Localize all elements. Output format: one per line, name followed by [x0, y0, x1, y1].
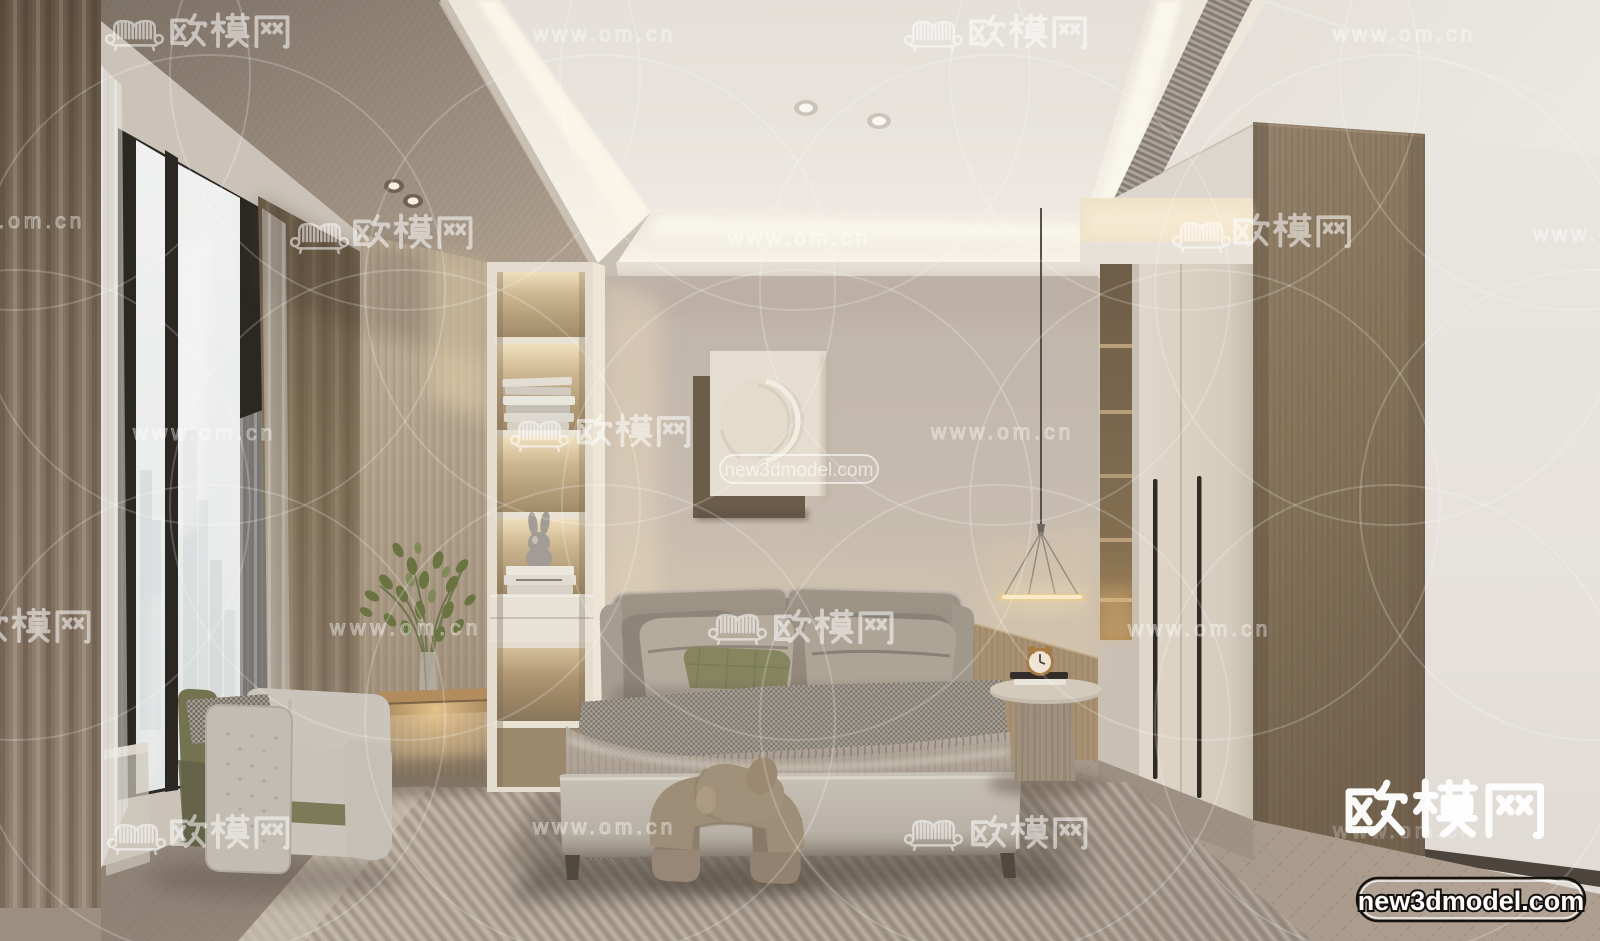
svg-text:www.om.cn: www.om.cn: [1127, 618, 1271, 641]
svg-text:www.om.cn: www.om.cn: [532, 23, 676, 46]
svg-text:www.om.cn: www.om.cn: [727, 227, 871, 250]
svg-text:www.om.cn: www.om.cn: [329, 617, 482, 640]
svg-text:www.om.cn: www.om.cn: [930, 421, 1074, 444]
svg-text:www.om.cn: www.om.cn: [1332, 23, 1476, 46]
svg-text:new3dmodel.com: new3dmodel.com: [1358, 886, 1585, 916]
svg-text:new3dmodel.com: new3dmodel.com: [725, 460, 874, 481]
svg-text:www.om.cn: www.om.cn: [0, 210, 85, 233]
svg-text:www.om.cn: www.om.cn: [132, 422, 276, 445]
svg-text:www.om.cn: www.om.cn: [532, 816, 676, 839]
svg-text:www.om: www.om: [1532, 223, 1600, 246]
